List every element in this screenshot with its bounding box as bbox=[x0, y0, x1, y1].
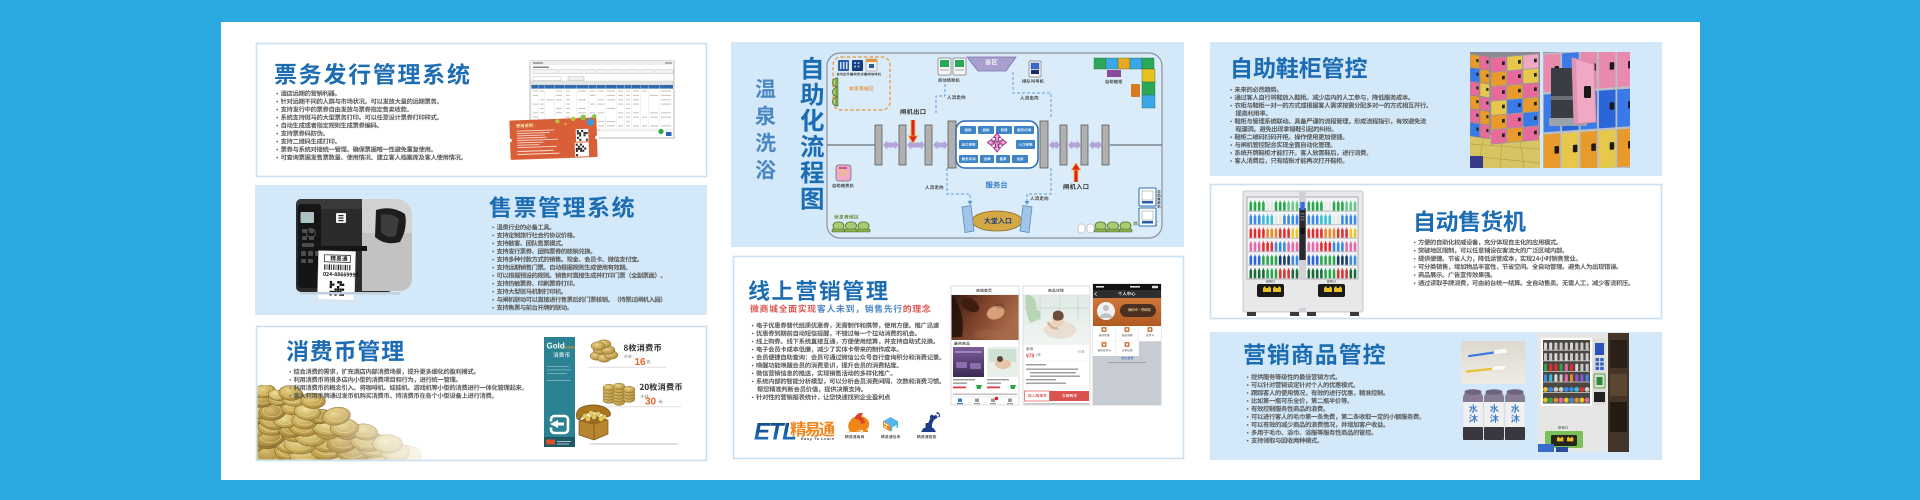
svg-text:Gold: Gold bbox=[547, 342, 565, 351]
svg-text:¥78: ¥78 bbox=[1026, 354, 1035, 360]
svg-text:Coins: Coins bbox=[565, 345, 577, 350]
svg-text:16: 16 bbox=[635, 357, 647, 368]
svg-text:Easy To Learn: Easy To Learn bbox=[801, 436, 835, 441]
svg-text:30: 30 bbox=[645, 397, 657, 408]
svg-text:ETL: ETL bbox=[754, 419, 796, 446]
